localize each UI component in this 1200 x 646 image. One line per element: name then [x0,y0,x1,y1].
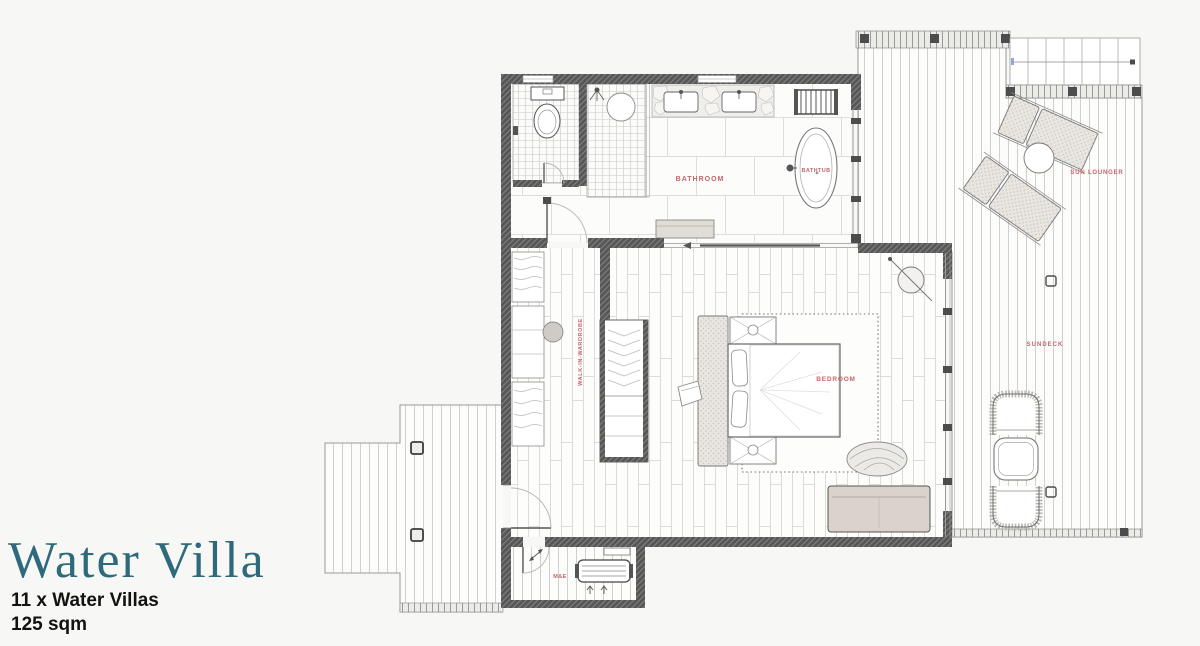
daybed-sofa [828,486,930,532]
mech-elec-label: M&E [553,574,566,580]
bathroom-label: BATHROOM [676,176,725,183]
towel-rail-symbol [794,89,838,115]
closet-bottom [512,382,544,446]
bed-headboard [698,316,728,466]
wall-segment [588,238,664,248]
deck-post [1120,528,1128,536]
outdoor-table [994,438,1038,480]
toilet-paper-holder [513,126,518,135]
bedroom-label: BEDROOM [816,376,856,383]
wall-segment [545,537,952,547]
wall-segment [636,545,645,608]
jetty-walkway [325,443,400,573]
nightstand-top [730,317,776,344]
title-block: Water Villa 11 x Water Villas 125 sqm [8,534,266,638]
walk-in-wardrobe-label: WALK-IN-WARDROBE [578,318,584,386]
sundeck-stairs [1010,38,1140,85]
wall-segment [501,74,861,84]
outdoor-chair-top [993,394,1039,435]
bathtub-label: BATHTUB [802,168,831,174]
deck-border-bottom [952,529,1142,537]
pouf-chair [847,442,907,476]
deck-border-entry [400,603,503,612]
entry-deck-floor [400,405,503,612]
wall-segment [851,74,861,110]
wall-segment [501,537,523,547]
wall-segment [501,246,511,485]
wardrobe-dresser [512,306,544,378]
wall-segment [600,248,610,320]
villa-count: 11 x Water Villas [11,589,266,614]
wall-segment [501,238,547,248]
sliding-door [664,242,858,249]
vent-box [604,548,630,555]
wardrobe-stool [543,322,563,342]
bed-pillow-bottom [731,391,748,428]
nightstand-bottom [730,437,776,464]
water-heater-symbol [575,560,633,582]
page: SUN LOUNGER SUNDECK [0,0,1200,646]
lounger-side-table [1024,143,1054,173]
villa-title: Water Villa [8,534,266,589]
wall-segment [858,243,952,253]
bed-symbol [728,344,840,437]
outdoor-chair-bottom [993,486,1039,527]
sun-lounger-label: SUN LOUNGER [1070,170,1123,176]
bed-pillow-top [731,350,748,387]
vanity-counter [652,85,774,117]
bathroom-bench [656,220,714,238]
closet-top [512,252,544,302]
island-wardrobe [600,320,648,462]
villa-area: 125 sqm [11,613,266,638]
entry-deck-area [325,405,503,612]
toilet-divider-wall [579,84,587,186]
wall-segment [501,600,645,608]
wall-segment [501,84,511,246]
sundeck-label: SUNDECK [1027,342,1064,348]
